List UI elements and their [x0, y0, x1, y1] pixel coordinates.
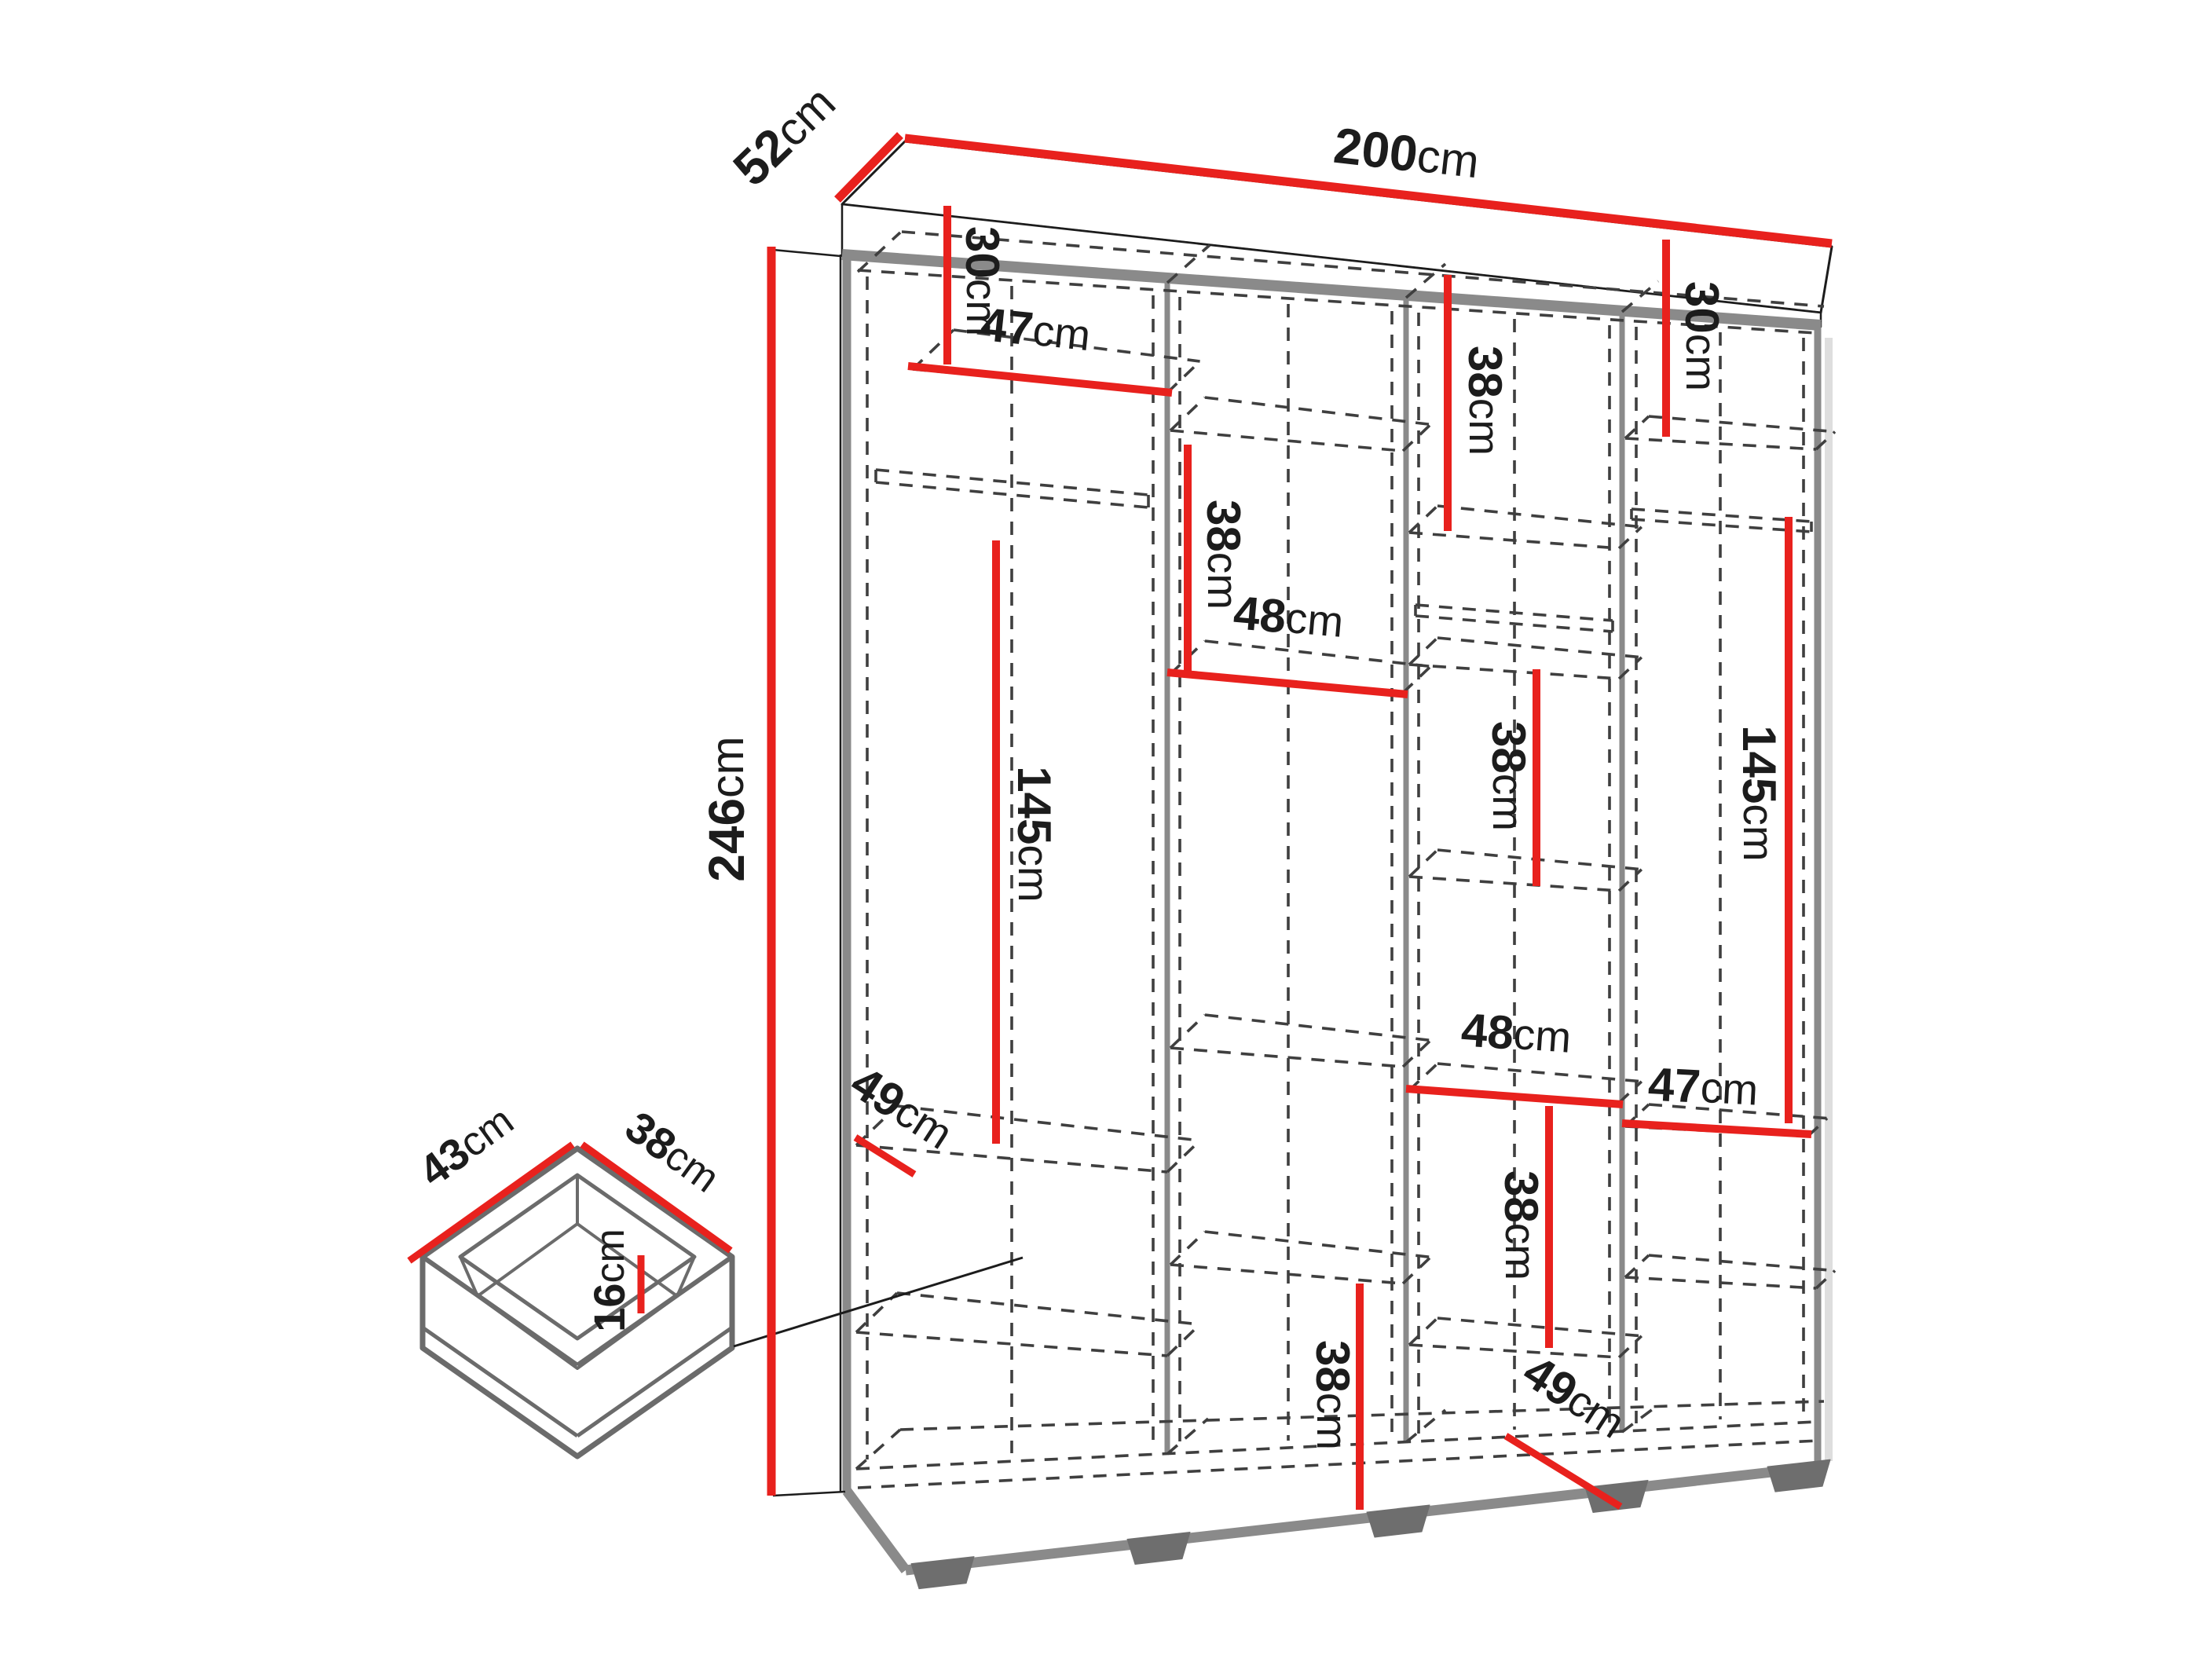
dim-label-48cm-c3: 48cm [1459, 1003, 1573, 1064]
shelf-c4-a-back [1649, 416, 1835, 432]
shelf-c1-47-diag-right [1167, 361, 1200, 393]
dim-label-38cm-c3-bot: 38cm [1495, 1170, 1547, 1280]
shelf-c1-mid-diag-right [1167, 1141, 1200, 1172]
wardrobe-dimension-diagram-page: 200cm52cm246cm30cm47cm38cm48cm145cm49cm3… [0, 0, 2212, 1659]
base-left-edge [847, 1491, 906, 1570]
dim-label-52cm: 52cm [723, 74, 847, 196]
dim-label-38cm-c3-mid: 38cm [1482, 721, 1535, 831]
dim-label-16cm-drawer: 16cm [584, 1229, 634, 1332]
shelf-c2-d-back [1205, 1232, 1430, 1257]
plinth-foot-1 [911, 1557, 974, 1589]
layer-black-lines [734, 250, 1023, 1496]
shelf-c3-e-back [1437, 1318, 1642, 1336]
shelf-c2-d-front [1170, 1265, 1403, 1284]
layer-dashed-interior [856, 232, 1835, 1488]
dim-label-246cm: 246cm [698, 736, 755, 881]
plinth-foot-3 [1367, 1505, 1430, 1537]
shelf-c2-c-diag-left [1170, 1015, 1205, 1048]
plinth-foot-2 [1127, 1533, 1190, 1565]
shelf-c3-b-back [1437, 638, 1642, 657]
dim-line-47-c1 [908, 366, 1172, 393]
shelf-c2-d-diag-left [1170, 1232, 1205, 1265]
ext-246-top [773, 250, 840, 256]
dim-label-30cm-c4: 30cm [1675, 281, 1728, 391]
floor-diag-1 [1167, 1419, 1208, 1454]
dim-label-145cm-c4: 145cm [1733, 725, 1785, 861]
dim-line-49-c1 [855, 1137, 914, 1174]
wardrobe-dimension-diagram: 200cm52cm246cm30cm47cm38cm48cm145cm49cm3… [0, 0, 2212, 1659]
dim-label-48cm-c2: 48cm [1232, 586, 1346, 648]
shelf-c1-low-diag-right [1167, 1324, 1200, 1356]
dim-label-47cm-c1: 47cm [978, 298, 1093, 361]
ext-246-bottom [773, 1492, 845, 1496]
floor-diag-left [856, 1430, 900, 1469]
shelf-c3-e-front [1409, 1345, 1619, 1357]
dim-label-200cm: 200cm [1331, 117, 1481, 190]
shelf-c2-a-front [1170, 430, 1403, 451]
shelf-c4-a-front [1625, 438, 1816, 449]
shelf-c2-c-front [1170, 1048, 1403, 1067]
shelf-c2-48-back [1205, 641, 1430, 666]
layer-drawer-inset [423, 1148, 732, 1456]
shelf-c3-48-back [1437, 1064, 1642, 1082]
shelf-c3-c-diag-left [1409, 850, 1437, 877]
dim-label-145cm-c1: 145cm [1008, 766, 1060, 902]
plinth-foot-5 [1767, 1459, 1830, 1492]
shelf-c3-e-diag-left [1409, 1318, 1437, 1345]
shelf-c2-a-diag-left [1170, 397, 1205, 430]
shelf-c2-c-back [1205, 1015, 1430, 1040]
shelf-c3-a-back [1437, 506, 1642, 527]
dim-label-38cm-c2-bot: 38cm [1306, 1340, 1359, 1450]
dim-label-38cm-c3-top: 38cm [1459, 346, 1511, 456]
dim-line-47-c4 [1622, 1123, 1811, 1134]
shelf-c4-c-back [1649, 1255, 1835, 1271]
shelf-c3-b-diag-left [1409, 638, 1437, 665]
dim-label-43cm-drawer: 43cm [409, 1095, 522, 1196]
dim-label-47cm-c4: 47cm [1647, 1057, 1760, 1115]
shelf-c3-a-diag-left [1409, 506, 1437, 533]
shelf-c2-a-back [1205, 397, 1430, 424]
